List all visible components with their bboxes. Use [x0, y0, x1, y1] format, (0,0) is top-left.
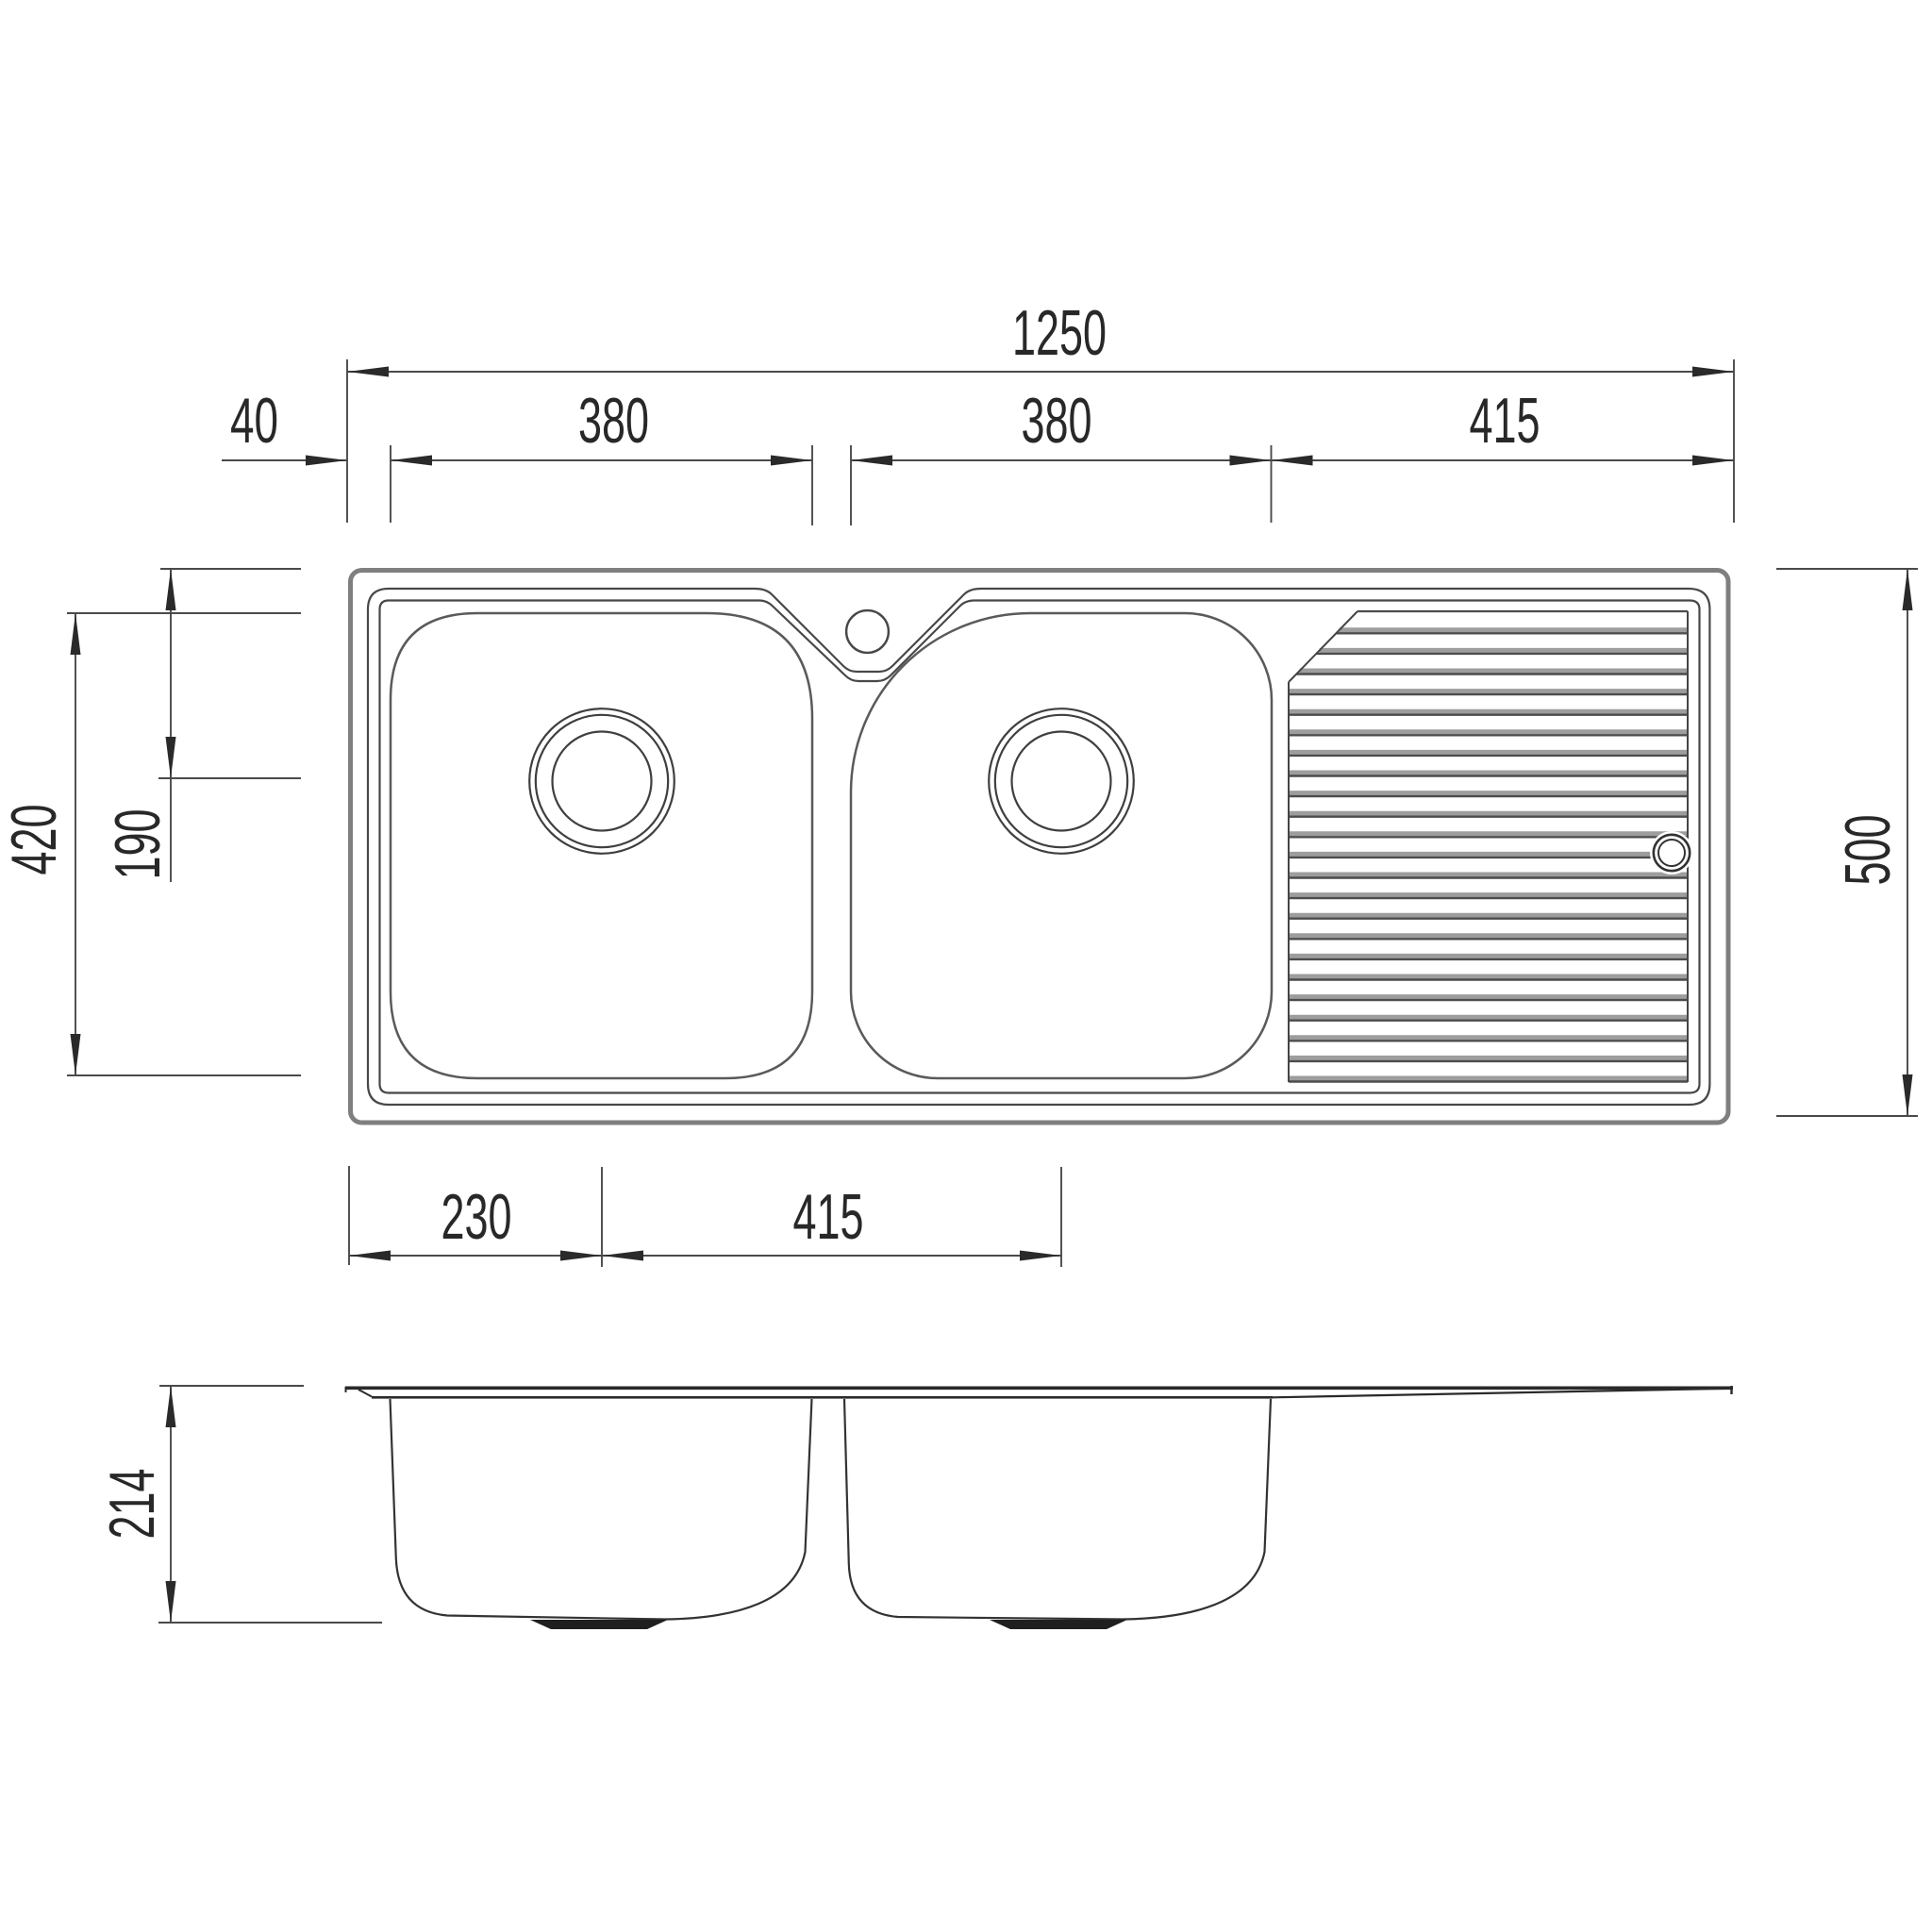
svg-text:190: 190	[102, 809, 174, 880]
svg-text:230: 230	[441, 1181, 512, 1253]
svg-text:380: 380	[1022, 385, 1092, 457]
svg-text:500: 500	[1832, 815, 1904, 886]
svg-text:415: 415	[793, 1181, 864, 1253]
svg-text:415: 415	[1470, 385, 1541, 457]
svg-text:420: 420	[0, 805, 70, 875]
svg-text:40: 40	[230, 385, 278, 457]
svg-text:1250: 1250	[1012, 297, 1107, 369]
svg-text:380: 380	[578, 385, 649, 457]
svg-text:214: 214	[96, 1469, 168, 1540]
